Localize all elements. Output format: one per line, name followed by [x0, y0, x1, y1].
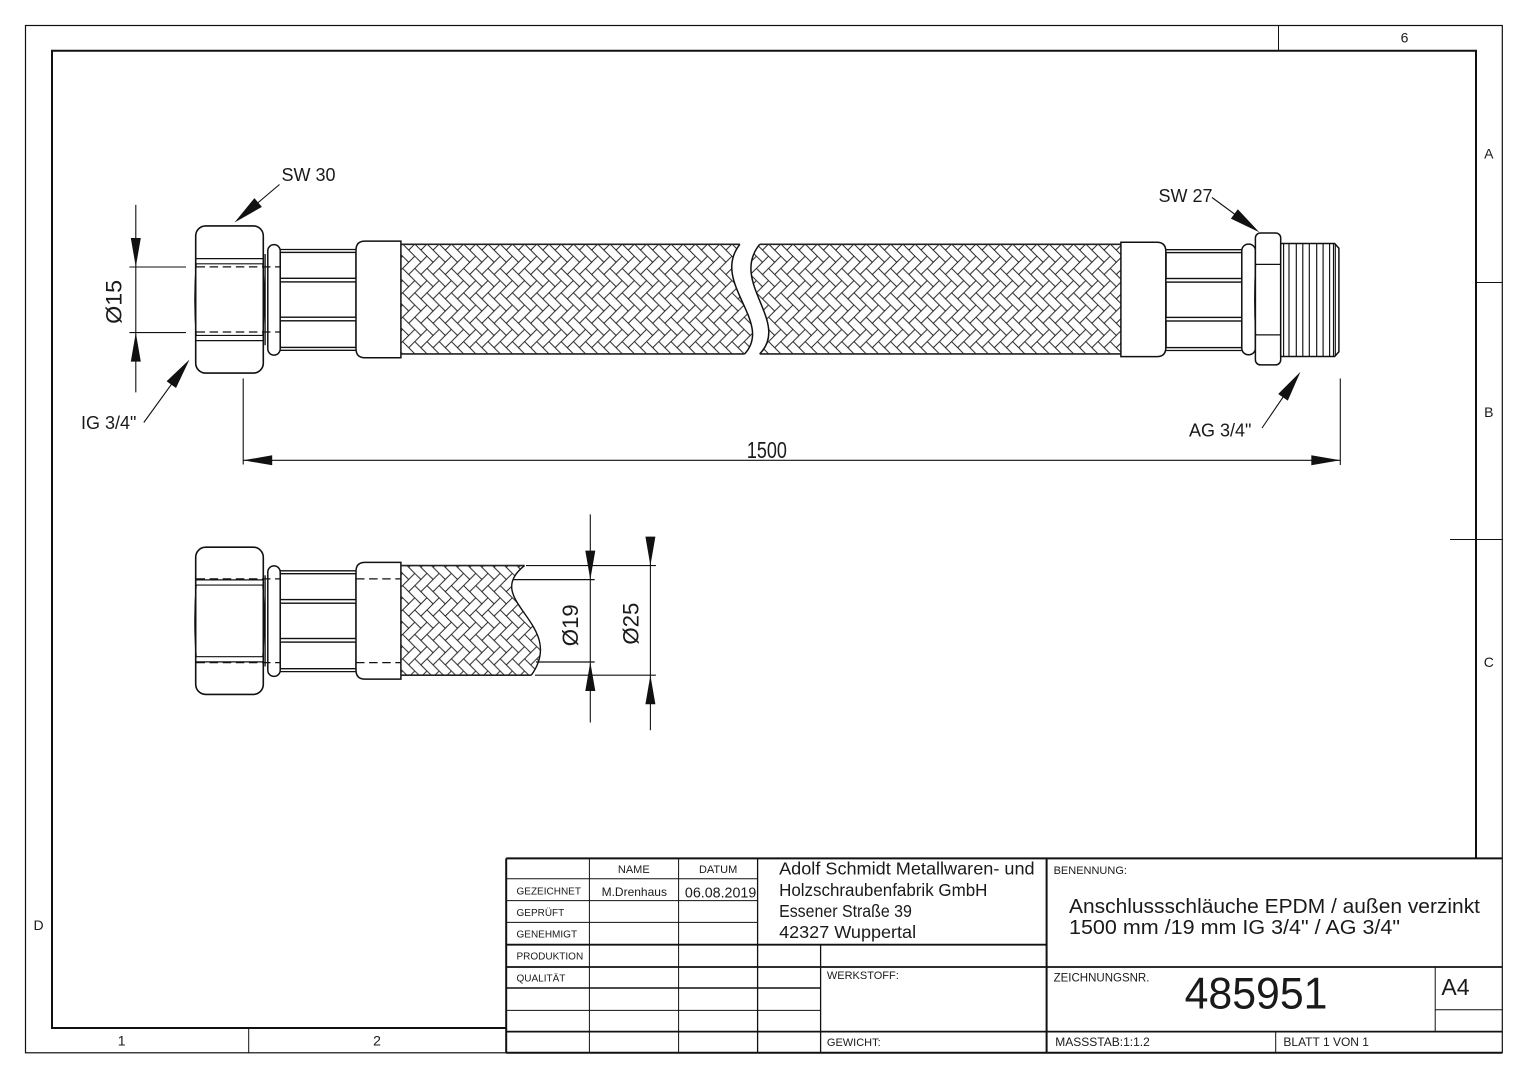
svg-text:GENEHMIGT: GENEHMIGT: [517, 930, 578, 941]
svg-text:SW 27: SW 27: [1159, 186, 1213, 206]
svg-text:Adolf Schmidt Metallwaren- und: Adolf Schmidt Metallwaren- und: [779, 859, 1035, 879]
svg-text:A: A: [1484, 146, 1494, 162]
svg-text:ZEICHNUNGSNR.: ZEICHNUNGSNR.: [1054, 973, 1150, 985]
svg-text:6: 6: [1401, 30, 1409, 46]
svg-text:Ø15: Ø15: [102, 280, 127, 324]
svg-text:PRODUKTION: PRODUKTION: [517, 952, 584, 963]
svg-text:D: D: [34, 917, 44, 933]
svg-text:NAME: NAME: [618, 864, 650, 876]
svg-text:B: B: [1484, 404, 1493, 420]
svg-text:Ø25: Ø25: [619, 603, 644, 645]
svg-text:BLATT 1 VON 1: BLATT 1 VON 1: [1283, 1035, 1369, 1049]
svg-text:Essener Straße 39: Essener Straße 39: [779, 901, 912, 921]
svg-text:Holzschraubenfabrik GmbH: Holzschraubenfabrik GmbH: [779, 880, 987, 900]
svg-text:GEWICHT:: GEWICHT:: [827, 1037, 881, 1049]
svg-text:MASSSTAB:1:1.2: MASSSTAB:1:1.2: [1055, 1035, 1150, 1049]
svg-text:1500: 1500: [747, 437, 787, 463]
svg-text:A4: A4: [1441, 974, 1469, 1000]
svg-text:C: C: [1484, 654, 1494, 670]
svg-text:1: 1: [118, 1033, 126, 1049]
svg-text:DATUM: DATUM: [699, 864, 737, 876]
svg-text:WERKSTOFF:: WERKSTOFF:: [827, 970, 899, 982]
svg-text:M.Drenhaus: M.Drenhaus: [602, 885, 667, 899]
svg-text:Ø19: Ø19: [558, 604, 583, 646]
svg-text:QUALITÄT: QUALITÄT: [517, 972, 566, 984]
svg-text:42327 Wuppertal: 42327 Wuppertal: [779, 922, 916, 942]
svg-text:06.08.2019: 06.08.2019: [685, 885, 756, 901]
svg-text:AG 3/4": AG 3/4": [1189, 420, 1251, 440]
svg-text:GEZEICHNET: GEZEICHNET: [517, 886, 581, 897]
svg-text:SW 30: SW 30: [282, 165, 336, 185]
svg-text:2: 2: [373, 1033, 381, 1049]
svg-text:1500 mm /19 mm IG 3/4" / AG 3/: 1500 mm /19 mm IG 3/4" / AG 3/4": [1069, 917, 1400, 939]
svg-text:GEPRÜFT: GEPRÜFT: [517, 907, 565, 919]
svg-text:IG 3/4": IG 3/4": [81, 413, 136, 433]
svg-text:Anschlussschläuche EPDM / auße: Anschlussschläuche EPDM / außen verzinkt: [1069, 896, 1480, 918]
svg-text:BENENNUNG:: BENENNUNG:: [1054, 865, 1127, 877]
svg-text:485951: 485951: [1185, 969, 1328, 1018]
